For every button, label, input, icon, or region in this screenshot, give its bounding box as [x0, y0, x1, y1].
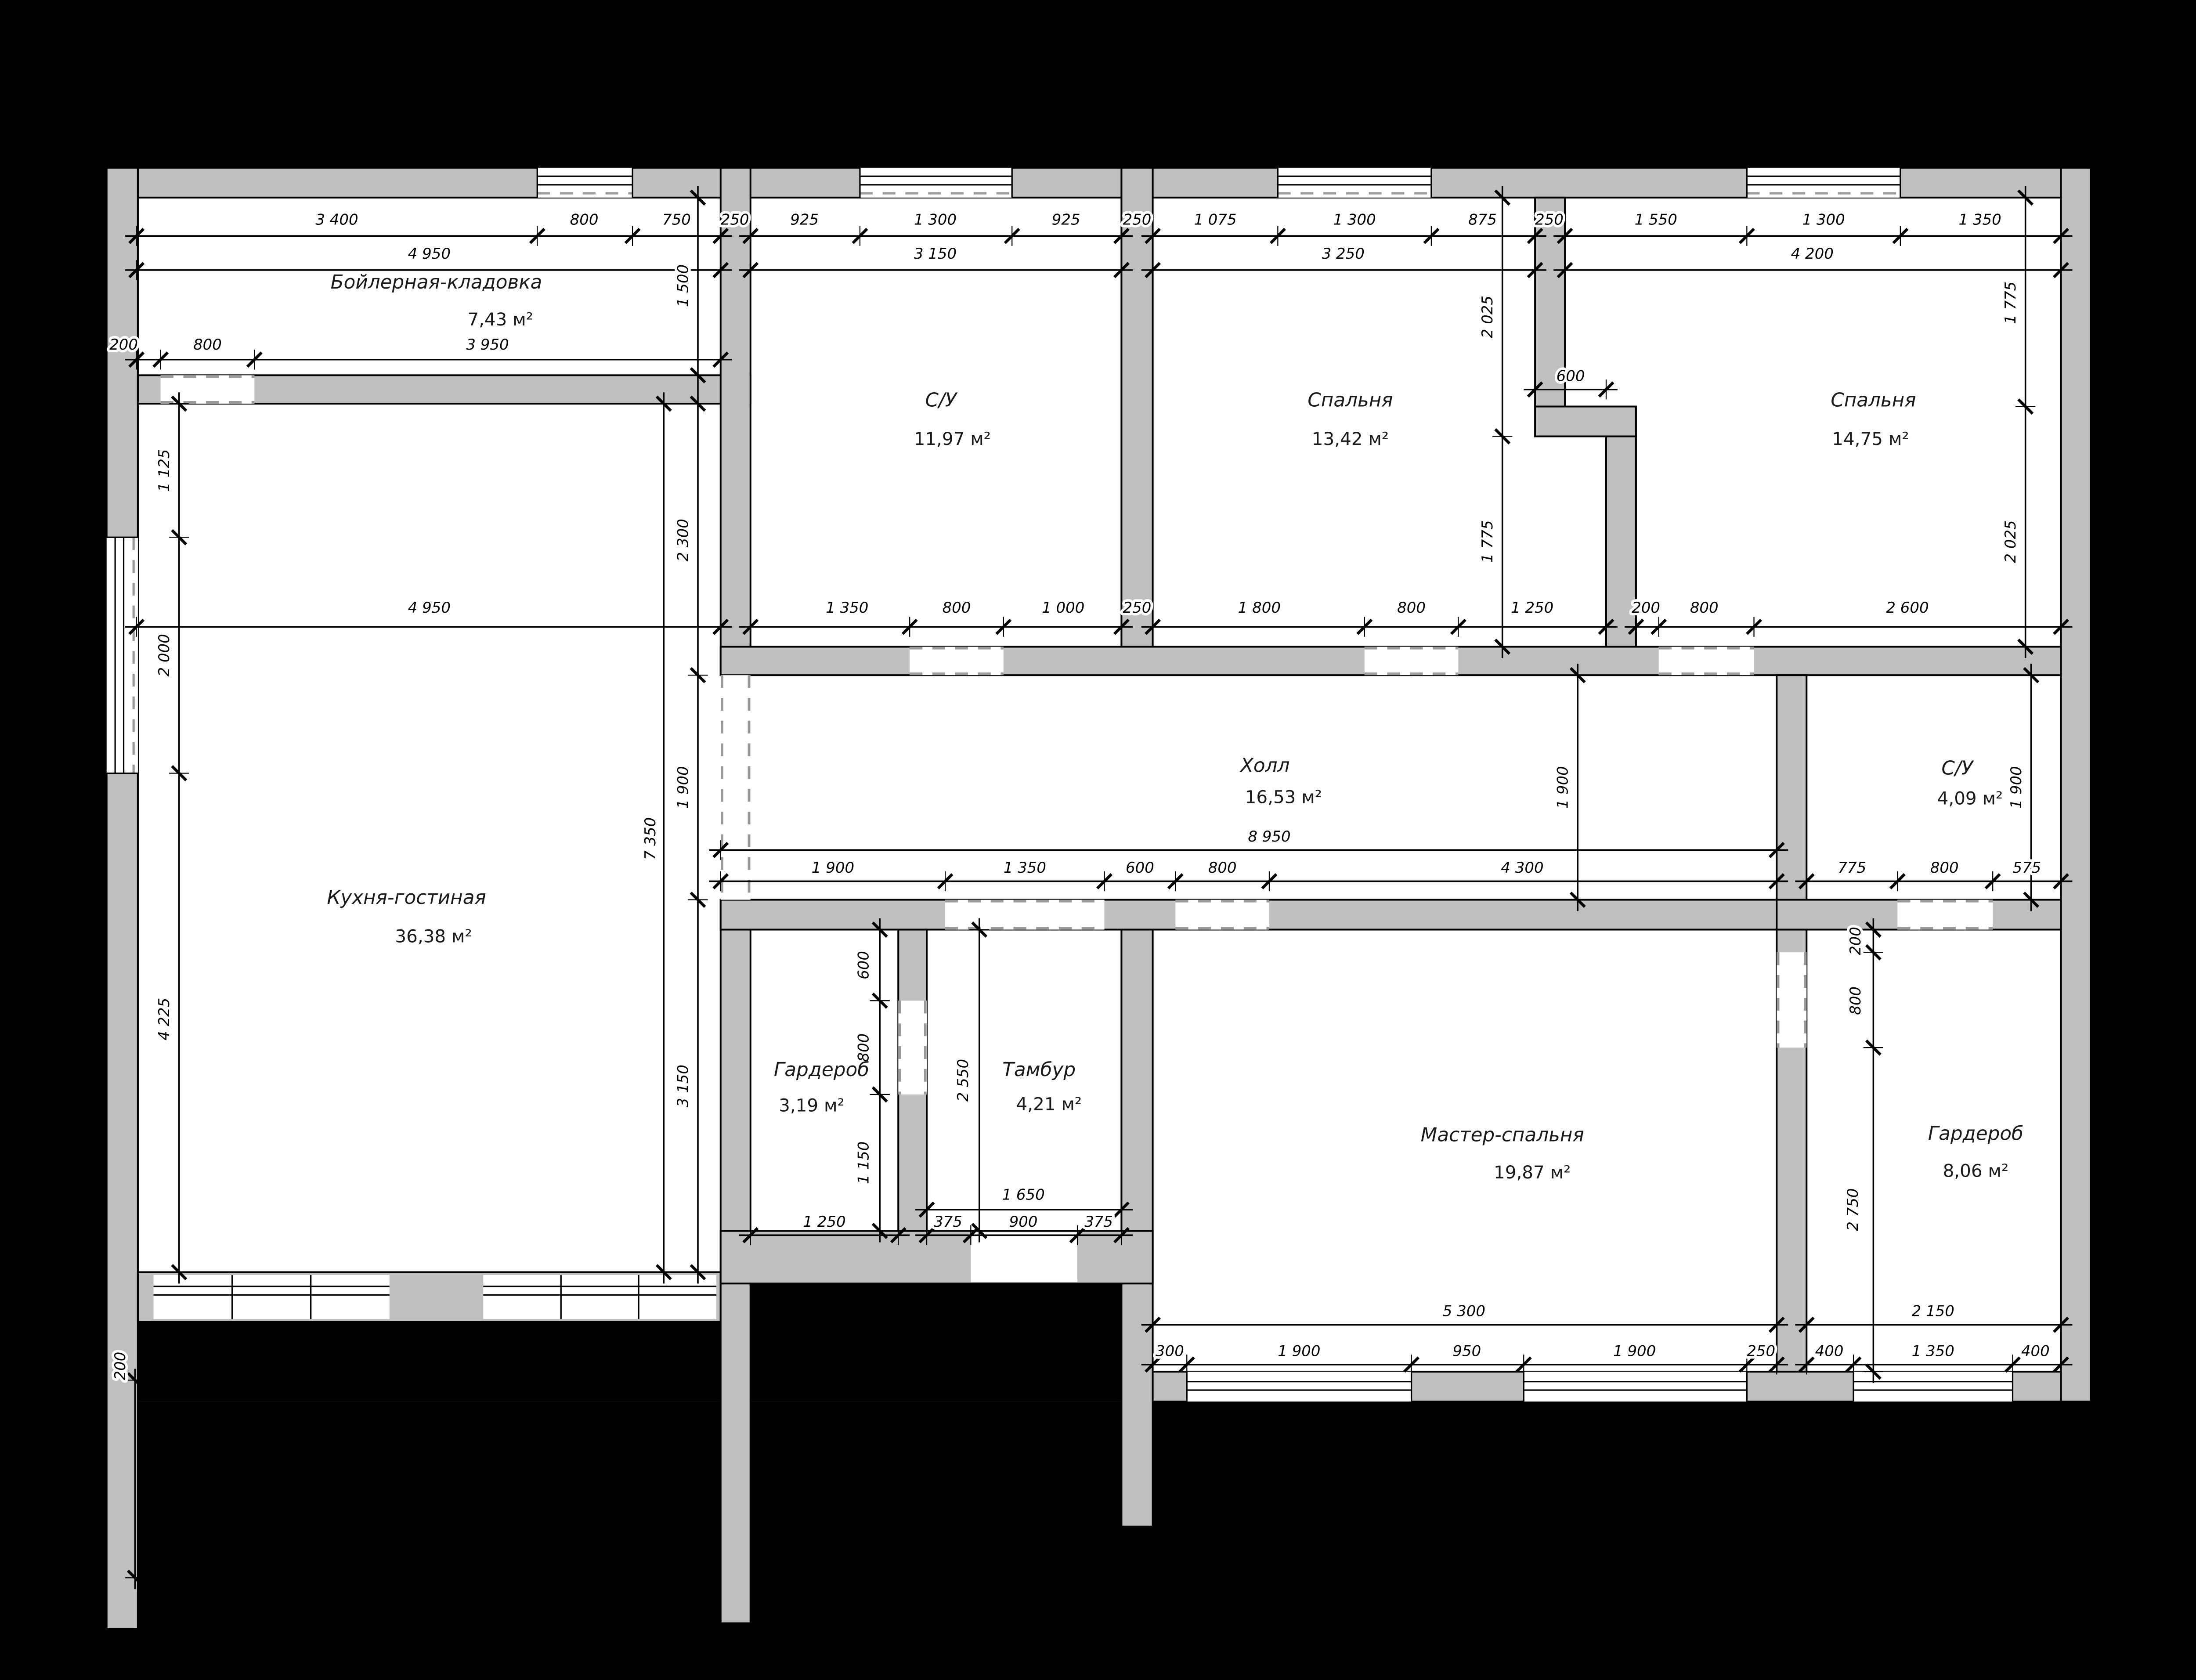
dimension-label: 1 800: [1238, 599, 1281, 617]
entrance-door-opening: [971, 1232, 1077, 1282]
dimension-label: 875: [1468, 211, 1497, 228]
room-area: 13,42 м²: [1312, 428, 1389, 449]
dimension-label: 800: [1208, 859, 1237, 877]
dimension-label: 200: [1847, 927, 1864, 955]
room-area: 8,06 м²: [1943, 1160, 2009, 1181]
dimension-label: 1 350: [1004, 859, 1046, 877]
dimension-label: 800: [943, 599, 971, 617]
dimension-label: 200: [109, 336, 138, 354]
room-area: 7,43 м²: [467, 309, 533, 330]
dimension-label: 250: [1123, 211, 1152, 228]
room-label: Холл: [1239, 754, 1289, 777]
dimension-label: 1 300: [914, 211, 957, 228]
dimension-label: 200: [1632, 599, 1660, 617]
dimension-label: 575: [2012, 859, 2041, 877]
dimension-label: 2 300: [674, 519, 692, 561]
dimension-label: 925: [790, 211, 819, 228]
door-opening-bedroom-2: [1659, 647, 1754, 675]
dimension-label: 1 350: [826, 599, 868, 617]
room-area: 36,38 м²: [395, 926, 472, 947]
dimension-label: 1 150: [855, 1142, 872, 1184]
dimension-label: 1 250: [1511, 599, 1553, 617]
dimension-label: 2 750: [1844, 1188, 1862, 1231]
dimension-label: 775: [1838, 859, 1866, 877]
dimension-label: 3 250: [1322, 245, 1365, 263]
opening-kitchen-hall: [721, 675, 751, 900]
dimension-label: 1 350: [1912, 1342, 1954, 1360]
dimension-label: 2 600: [1886, 599, 1929, 617]
dimension-label: 925: [1052, 211, 1080, 228]
dimension-label: 1 775: [1479, 520, 1496, 563]
dimension-label: 250: [1535, 211, 1564, 228]
dimension-label: 3 950: [466, 336, 509, 354]
dimension-label: 300: [1156, 1342, 1184, 1360]
dimension-label: 4 950: [408, 599, 451, 617]
room-label: Спальня: [1307, 389, 1393, 412]
dimension-label: 800: [855, 1033, 872, 1062]
dimension-label: 900: [1009, 1213, 1038, 1231]
dimension-label: 800: [1690, 599, 1719, 617]
dimension-label: 7 350: [642, 817, 659, 860]
wall-segment: [107, 168, 138, 1629]
door-opening-bath-right: [1897, 900, 1993, 930]
wall-segment: [721, 1231, 1153, 1284]
dimension-label: 375: [934, 1213, 962, 1231]
dimension-label: 4 950: [408, 245, 451, 263]
room-label: Спальня: [1831, 389, 1916, 412]
door-opening-wardrobe-left: [898, 1001, 927, 1095]
room-area: 4,21 м²: [1016, 1093, 1082, 1114]
porch-area: [751, 1283, 1122, 1402]
window: [1187, 1372, 1411, 1402]
dimension-label: 1 250: [803, 1213, 845, 1231]
window: [1524, 1372, 1747, 1402]
dimension-label: 600: [855, 951, 872, 979]
door-opening-master: [1175, 900, 1269, 930]
dimension-label: 600: [1557, 367, 1585, 385]
terrace-area: [138, 1322, 721, 1402]
dimension-label: 1 000: [1042, 599, 1084, 617]
dimension-label: 600: [1126, 859, 1154, 877]
dimension-label: 2 000: [155, 634, 173, 676]
door-opening-wardrobe-right: [1777, 952, 1806, 1048]
room-area: 19,87 м²: [1494, 1162, 1571, 1183]
dimension-label: 8 950: [1248, 828, 1290, 845]
dimension-label: 2 025: [2002, 520, 2019, 563]
dimension-label: 1 900: [812, 859, 854, 877]
floor-plan-canvas: 3 4008007502509251 3009252501 0751 30087…: [0, 0, 2196, 1647]
room-label: Гардероб: [1928, 1122, 2023, 1145]
dimension-label: 1 075: [1194, 211, 1236, 228]
dimension-label: 4 225: [155, 998, 173, 1041]
dimension-label: 1 500: [674, 264, 692, 307]
dimension-label: 1 350: [1958, 211, 2001, 228]
dimension-label: 1 900: [1613, 1342, 1656, 1360]
wall-segment: [721, 168, 751, 675]
opening-vestibule: [945, 900, 1104, 930]
dimension-label: 2 150: [1912, 1303, 1954, 1320]
room-label: Кухня-гостиная: [327, 886, 486, 909]
dimension-label: 2 025: [1479, 296, 1496, 338]
dimension-label: 250: [721, 211, 749, 228]
dimension-label: 1 650: [1002, 1186, 1044, 1203]
dimension-label: 800: [1847, 986, 1864, 1015]
room-area: 11,97 м²: [914, 428, 991, 449]
dimension-label: 5 300: [1443, 1303, 1485, 1320]
wall-segment: [1121, 929, 1152, 1526]
dimension-label: 3 150: [674, 1065, 692, 1107]
door-opening-bedroom-1: [1365, 647, 1459, 675]
dimension-label: 750: [662, 211, 691, 228]
room-label: Бойлерная-кладовка: [331, 271, 542, 293]
dimension-label: 1 900: [2008, 766, 2025, 809]
room-label: Мастер-спальня: [1421, 1124, 1584, 1146]
dimension-label: 400: [1815, 1342, 1844, 1360]
wall-segment: [1777, 675, 1806, 929]
dimension-label: 200: [112, 1352, 129, 1380]
dimension-label: 800: [1930, 859, 1959, 877]
dimension-label: 950: [1452, 1342, 1481, 1360]
dimension-label: 800: [570, 211, 599, 228]
dimension-label: 250: [1747, 1342, 1775, 1360]
room-label: С/У: [925, 389, 957, 412]
room-area: 4,09 м²: [1937, 788, 2003, 809]
dimension-label: 2 550: [954, 1059, 972, 1102]
room-label: Гардероб: [774, 1059, 869, 1081]
dimension-label: 1 900: [674, 766, 692, 809]
dimension-label: 1 900: [1278, 1342, 1320, 1360]
dimension-label: 1 775: [2002, 282, 2019, 324]
dimension-label: 1 300: [1802, 211, 1845, 228]
wall-segment: [2061, 168, 2091, 1402]
dimension-label: 250: [1123, 599, 1152, 617]
dimension-label: 1 900: [1554, 766, 1572, 809]
dimension-label: 1 300: [1333, 211, 1376, 228]
dimension-label: 3 400: [315, 211, 358, 228]
room-area: 16,53 м²: [1245, 786, 1322, 807]
dimension-label: 800: [193, 336, 222, 354]
wall-segment: [1535, 407, 1636, 437]
dimension-label: 4 300: [1501, 859, 1543, 877]
dimension-label: 800: [1397, 599, 1426, 617]
room-area: 14,75 м²: [1832, 428, 1909, 449]
room-label: Тамбур: [1002, 1059, 1076, 1081]
dimension-label: 1 550: [1635, 211, 1677, 228]
room-area: 3,19 м²: [779, 1095, 845, 1116]
window: [154, 1275, 390, 1319]
floor-plan: 3 4008007502509251 3009252501 0751 30087…: [0, 0, 2196, 1647]
dimension-label: 3 150: [914, 245, 957, 263]
dimension-label: 375: [1084, 1213, 1113, 1231]
dimension-label: 4 200: [1791, 245, 1834, 263]
dimension-label: 1 125: [155, 449, 173, 492]
room-label: С/У: [1941, 757, 1974, 780]
dimension-label: 400: [2021, 1342, 2050, 1360]
window: [483, 1275, 716, 1319]
door-opening-bath-left: [910, 647, 1004, 675]
